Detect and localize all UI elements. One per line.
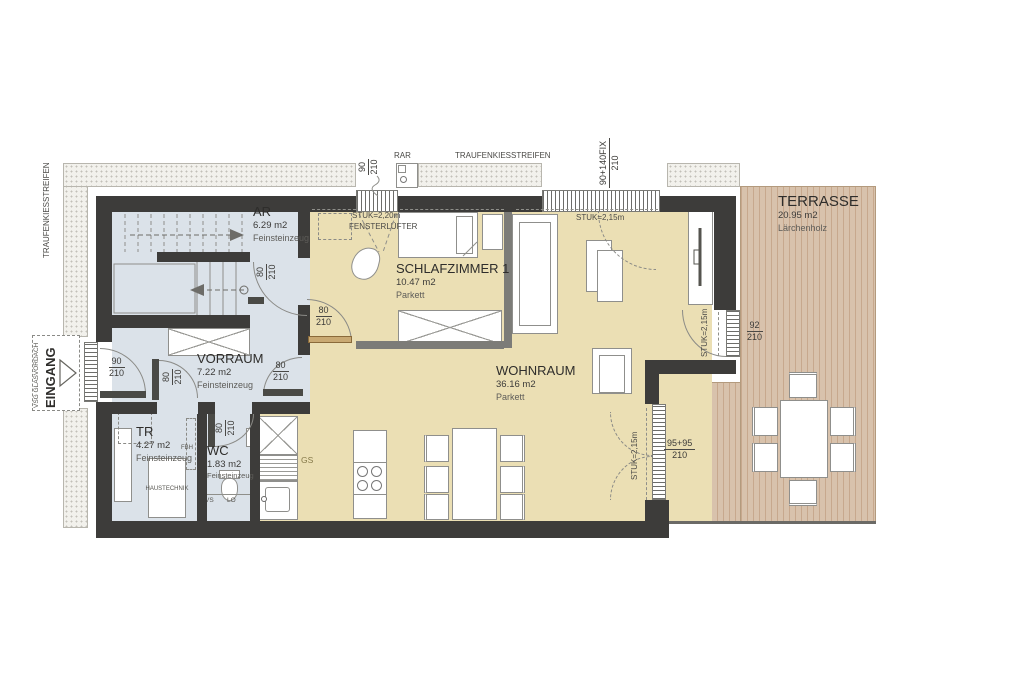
wall-left-lower — [96, 402, 112, 538]
stuk-line — [400, 209, 504, 210]
room-name: WOHNRAUM — [496, 364, 575, 379]
dim-num: 80 — [316, 305, 332, 317]
wall-tr-wc — [197, 414, 207, 521]
dim-ar-door: 80210 — [255, 253, 287, 291]
room-label-wohnraum: WOHNRAUM 36.16 m2 Parkett — [496, 364, 575, 402]
gravel-label-top: TRAUFENKIESSTREIFEN — [455, 151, 551, 160]
dining-chair — [500, 466, 525, 493]
ventilation-duct-box — [318, 213, 352, 240]
wall-jog-vertical — [645, 360, 659, 404]
room-floor: Parkett — [496, 392, 575, 402]
dim-num: 210 — [313, 317, 334, 328]
terrace-door-glazing — [726, 310, 740, 357]
room-area: 6.29 m2 — [253, 221, 309, 232]
room-area: 4.27 m2 — [136, 441, 192, 452]
room-floor: Feinsteinzeug — [253, 233, 309, 243]
room-area: 20.95 m2 — [778, 211, 859, 222]
stuk-label-wohnraum: STUK=2,15m — [576, 213, 624, 222]
terrace-edge-line — [668, 521, 876, 524]
staircase — [112, 212, 250, 315]
kitchen-tall-cabinet — [258, 416, 298, 455]
dim-tr-door: 80210 — [161, 358, 193, 396]
dim-wc-door: 80210 — [214, 409, 246, 447]
wall-vorraum-south-2 — [198, 402, 215, 414]
gravel-strip-top-1 — [63, 163, 356, 187]
wall-east-bottom-stub — [645, 500, 669, 538]
dim-num: 80 — [273, 360, 289, 372]
floor-plan-canvas: TRAUFENKIESSTREIFEN TRAUFENKIESSTREIFEN … — [0, 0, 1024, 683]
room-area: 36.16 m2 — [496, 380, 575, 391]
rar-inner-square — [398, 165, 406, 173]
cooktop-burner — [357, 466, 368, 477]
gravel-strip-top-2 — [418, 163, 542, 187]
terrace-chair — [789, 372, 817, 398]
room-floor: Parkett — [396, 290, 509, 300]
dim-num: 210 — [173, 366, 184, 387]
stair-landing-wall — [157, 252, 250, 262]
tv-sideboard — [688, 210, 713, 305]
stuk-line — [312, 209, 356, 210]
dim-num: 95+95 — [664, 438, 695, 450]
stuk-line — [516, 209, 658, 210]
gravel-strip-top-3 — [667, 163, 740, 187]
fensterluefter-label: FENSTERLÜFTER — [349, 222, 417, 231]
canopy-label: VSG GLASVORDACH — [33, 338, 40, 408]
room-name: AR — [253, 205, 309, 220]
terrace-chair — [752, 407, 778, 436]
stuk-label-sliding-door: STUK=2,15m — [630, 424, 639, 480]
room-label-vorraum: VORRAUM 7.22 m2 Feinsteinzeug — [197, 352, 263, 390]
tr-door-leaf — [152, 359, 159, 400]
schlafzimmer-door-leaf — [308, 336, 352, 343]
wall-vorraum-south-3 — [252, 402, 310, 414]
window-schlafzimmer — [356, 190, 398, 212]
dim-num: 210 — [744, 332, 765, 343]
dim-num: 210 — [106, 368, 127, 379]
room-name: TERRASSE — [778, 193, 859, 210]
wall-vorraum-south-1 — [96, 402, 157, 414]
room-floor: Feinsteinzeug — [207, 472, 254, 481]
dining-chair — [500, 494, 525, 520]
room-area: 1.83 m2 — [207, 460, 254, 471]
room-floor: Feinsteinzeug — [197, 380, 263, 390]
room-label-ar: AR 6.29 m2 Feinsteinzeug — [253, 205, 309, 243]
dim-window-90-210: 90210 — [357, 147, 391, 187]
room-label-tr: TR 4.27 m2 Feinsteinzeug — [136, 425, 192, 463]
room-label-schlafzimmer1: SCHLAFZIMMER 1 10.47 m2 Parkett — [396, 262, 509, 300]
terrace-chair — [830, 443, 856, 472]
dim-sliding-door: 95+95 210 — [664, 438, 695, 462]
dim-num: 80 — [255, 264, 267, 280]
room-area: 10.47 m2 — [396, 278, 509, 289]
wall-east — [714, 196, 736, 310]
entrance-arrow-icon — [58, 358, 78, 388]
room-floor: Lärchenholz — [778, 223, 859, 233]
bedroom-wardrobe — [398, 310, 502, 345]
dim-num: 80 — [214, 420, 226, 436]
room-floor: Feinsteinzeug — [136, 453, 192, 463]
dim-num: 92 — [747, 320, 763, 332]
room-name: VORRAUM — [197, 352, 263, 367]
room-label-wc: WC 1.83 m2 Feinsteinzeug — [207, 444, 254, 480]
dim-entrance-door: 90 210 — [106, 356, 127, 380]
room-name: TR — [136, 425, 192, 440]
armchair-seat — [599, 355, 625, 393]
dim-num: 210 — [669, 450, 690, 461]
kitchen-faucet — [261, 496, 267, 502]
vorraum-wohnraum-door-leaf — [263, 389, 303, 396]
dim-terrace-door: 92 210 — [744, 320, 765, 344]
entrance-label: EINGANG — [43, 338, 58, 408]
rar-drain-circle — [400, 176, 407, 183]
gravel-strip-left-upper — [63, 163, 88, 337]
entrance-door-leaf — [100, 391, 146, 398]
room-name: SCHLAFZIMMER 1 — [396, 262, 509, 277]
ar-door-leaf — [248, 297, 264, 304]
dining-table — [452, 428, 497, 520]
terrace-table — [780, 400, 828, 478]
coffee-table-2 — [597, 250, 623, 302]
island-divider-1 — [353, 462, 387, 463]
dim-num: 210 — [270, 372, 291, 383]
dim-num: 210 — [226, 417, 237, 438]
nightstand — [482, 214, 503, 250]
dim-num: 80 — [161, 369, 173, 385]
wall-schlafzimmer-south — [356, 341, 504, 349]
terrace-chair — [830, 407, 856, 436]
room-label-terrasse: TERRASSE 20.95 m2 Lärchenholz — [778, 193, 859, 234]
room-area: 7.22 m2 — [197, 368, 263, 379]
bed-pillow — [456, 216, 473, 254]
kitchen-sink — [265, 487, 290, 512]
dim-vorraum-wohnraum-door: 80 210 — [270, 360, 291, 384]
kitchen-fridge — [258, 455, 298, 481]
dim-num: 210 — [267, 261, 278, 282]
dim-num: 210 — [369, 156, 380, 177]
stuk-label-terrace-door: STUK=2,15m — [700, 311, 709, 357]
dishwasher-label: GS — [301, 455, 313, 465]
rar-label: RAR — [394, 151, 411, 160]
dining-chair — [424, 494, 449, 520]
wall-bottom — [96, 521, 669, 538]
dim-num: 90+140FIX — [598, 138, 610, 188]
terrace-chair — [752, 443, 778, 472]
haustechnik-label: HAUSTECHNIK — [138, 486, 196, 492]
wc-shelf-line — [200, 494, 250, 495]
cooktop-burner — [371, 466, 382, 477]
dining-chair — [424, 435, 449, 462]
lo-label: LO — [227, 497, 236, 504]
dining-chair — [424, 466, 449, 493]
wall-ar-vorraum — [96, 315, 250, 328]
entrance-door-glazing — [84, 342, 98, 402]
dim-num: 210 — [610, 153, 621, 174]
dim-num: 90 — [357, 159, 369, 175]
cooktop-burner — [357, 480, 368, 491]
dim-num: 90 — [109, 356, 125, 368]
dining-chair — [500, 435, 525, 462]
island-divider-2 — [353, 494, 387, 495]
terrace-chair — [789, 480, 817, 506]
sofa-cushion — [519, 222, 551, 326]
gravel-strip-left-lower — [63, 408, 88, 528]
cooktop-burner — [371, 480, 382, 491]
dim-schlafzimmer-door: 80 210 — [313, 305, 334, 329]
stuk-label-schlafzimmer: STUK=2,20m — [352, 211, 400, 220]
gravel-label-left: TRAUFENKIESSTREIFEN — [42, 163, 51, 258]
